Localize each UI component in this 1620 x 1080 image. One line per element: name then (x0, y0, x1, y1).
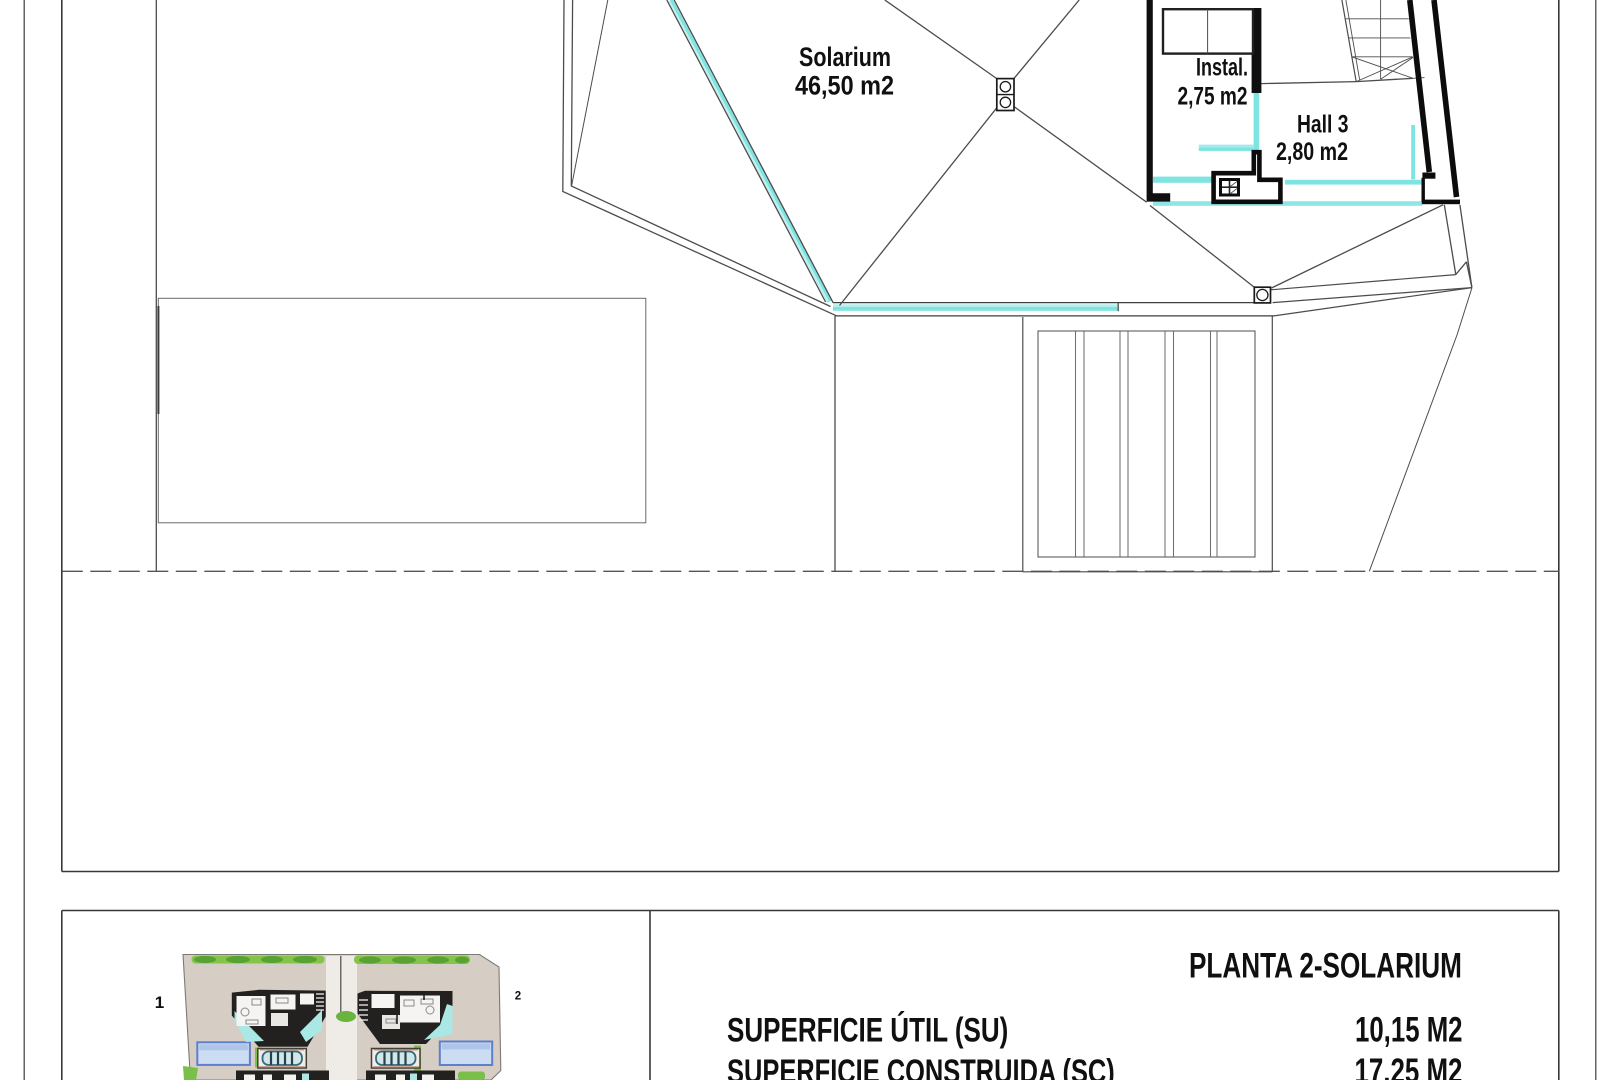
svg-text:2,80 m2: 2,80 m2 (1276, 138, 1348, 166)
svg-text:46,50 m2: 46,50 m2 (795, 71, 894, 101)
svg-text:Instal.: Instal. (1196, 53, 1248, 82)
svg-text:SUPERFICIE ÚTIL (SU): SUPERFICIE ÚTIL (SU) (727, 1009, 1008, 1050)
svg-text:Hall 3: Hall 3 (1297, 110, 1348, 138)
svg-text:SUPERFICIE CONSTRUIDA (SC): SUPERFICIE CONSTRUIDA (SC) (727, 1054, 1115, 1080)
svg-text:2: 2 (515, 991, 521, 1003)
svg-text:PLANTA 2-SOLARIUM: PLANTA 2-SOLARIUM (1189, 946, 1462, 986)
svg-text:10,15 M2: 10,15 M2 (1355, 1010, 1463, 1050)
svg-text:17,25 M2: 17,25 M2 (1355, 1051, 1463, 1080)
svg-text:Solarium: Solarium (799, 43, 891, 73)
svg-text:2,75 m2: 2,75 m2 (1178, 82, 1248, 110)
svg-text:1: 1 (155, 993, 164, 1012)
